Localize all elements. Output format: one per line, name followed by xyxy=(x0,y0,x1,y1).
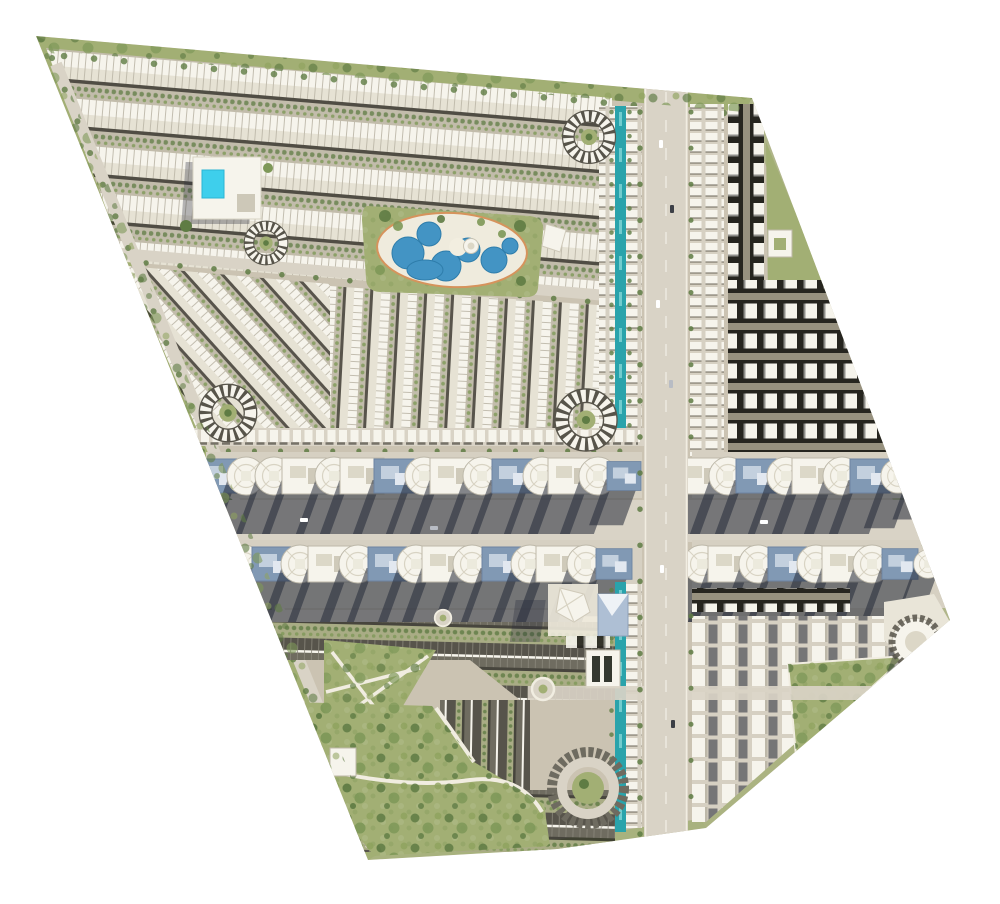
masterplan-svg xyxy=(0,0,1000,904)
clubhouse-roof xyxy=(237,194,255,212)
crescent-culdesac xyxy=(562,396,611,445)
commercial-buildings-north xyxy=(177,457,941,534)
northeast-apartment-loop xyxy=(690,104,906,456)
central-lagoon-park xyxy=(362,206,543,297)
masterplan-canvas xyxy=(0,0,1000,904)
roundabout xyxy=(435,610,452,627)
school xyxy=(586,650,620,688)
corner-building xyxy=(884,594,950,678)
crescent-culdesac xyxy=(568,116,609,157)
clubhouse-pool xyxy=(202,170,224,198)
landmark-parking xyxy=(566,636,610,648)
crescent-culdesac xyxy=(206,391,251,436)
roundabout xyxy=(532,678,554,700)
crescent-culdesac xyxy=(249,226,283,260)
commercial-band-north xyxy=(177,452,941,534)
